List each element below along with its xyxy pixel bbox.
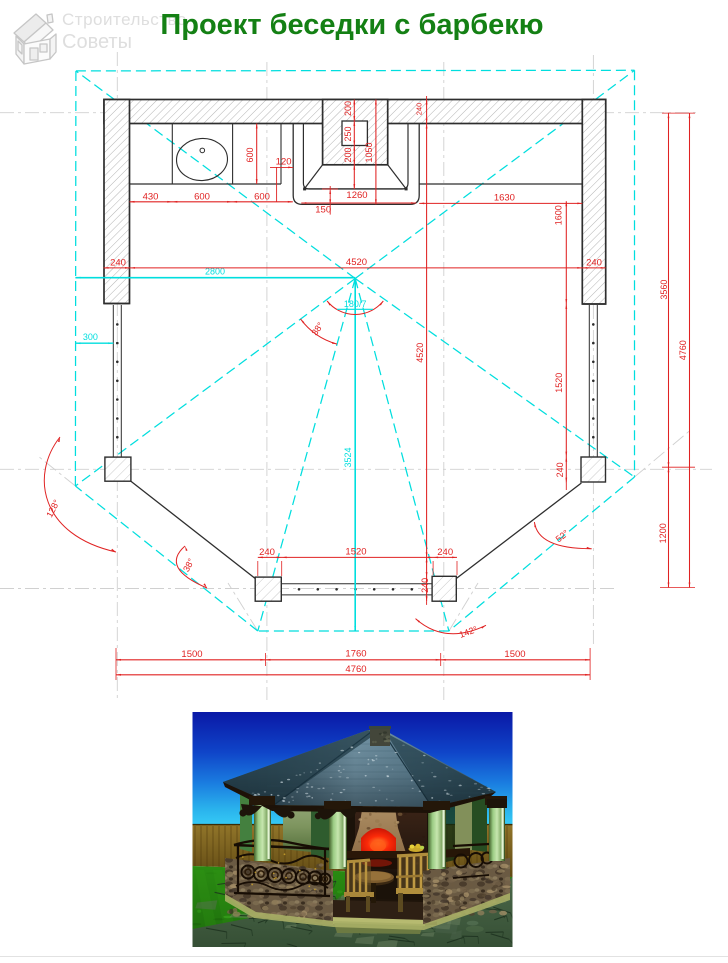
svg-text:128°: 128° (44, 498, 62, 519)
svg-text:38°: 38° (181, 556, 196, 573)
svg-text:240: 240 (586, 258, 602, 269)
svg-text:142°: 142° (458, 624, 479, 640)
svg-text:1600: 1600 (553, 205, 563, 225)
svg-text:300: 300 (83, 332, 98, 342)
svg-text:150: 150 (315, 204, 331, 215)
svg-text:240: 240 (437, 547, 453, 558)
svg-text:4520: 4520 (415, 343, 425, 363)
svg-text:200: 200 (343, 101, 353, 116)
svg-text:1050: 1050 (364, 142, 374, 162)
svg-text:3560: 3560 (659, 280, 669, 300)
svg-text:52°: 52° (554, 528, 571, 545)
svg-text:1520: 1520 (345, 547, 366, 558)
svg-text:600: 600 (194, 191, 210, 202)
svg-text:1520: 1520 (554, 373, 564, 393)
svg-text:1200: 1200 (658, 523, 668, 543)
svg-text:1500: 1500 (181, 649, 202, 660)
svg-text:430: 430 (143, 191, 159, 202)
svg-text:4760: 4760 (345, 664, 366, 675)
svg-text:1260: 1260 (346, 190, 367, 201)
svg-text:3524: 3524 (343, 447, 353, 467)
svg-text:200: 200 (343, 147, 353, 162)
svg-text:240: 240 (420, 578, 430, 593)
svg-text:240: 240 (110, 257, 126, 268)
svg-text:180/7: 180/7 (344, 299, 367, 309)
svg-text:250: 250 (343, 126, 353, 141)
svg-text:120: 120 (276, 157, 292, 168)
svg-text:240: 240 (414, 103, 423, 116)
svg-text:4760: 4760 (678, 340, 688, 360)
svg-text:240: 240 (259, 547, 275, 558)
svg-text:1760: 1760 (345, 649, 366, 660)
svg-text:38°: 38° (310, 320, 326, 337)
svg-text:1630: 1630 (494, 193, 515, 204)
svg-text:1500: 1500 (504, 649, 525, 660)
svg-text:600: 600 (245, 147, 255, 162)
svg-text:600: 600 (254, 191, 270, 202)
svg-text:240: 240 (555, 462, 565, 477)
svg-text:4520: 4520 (346, 257, 367, 268)
